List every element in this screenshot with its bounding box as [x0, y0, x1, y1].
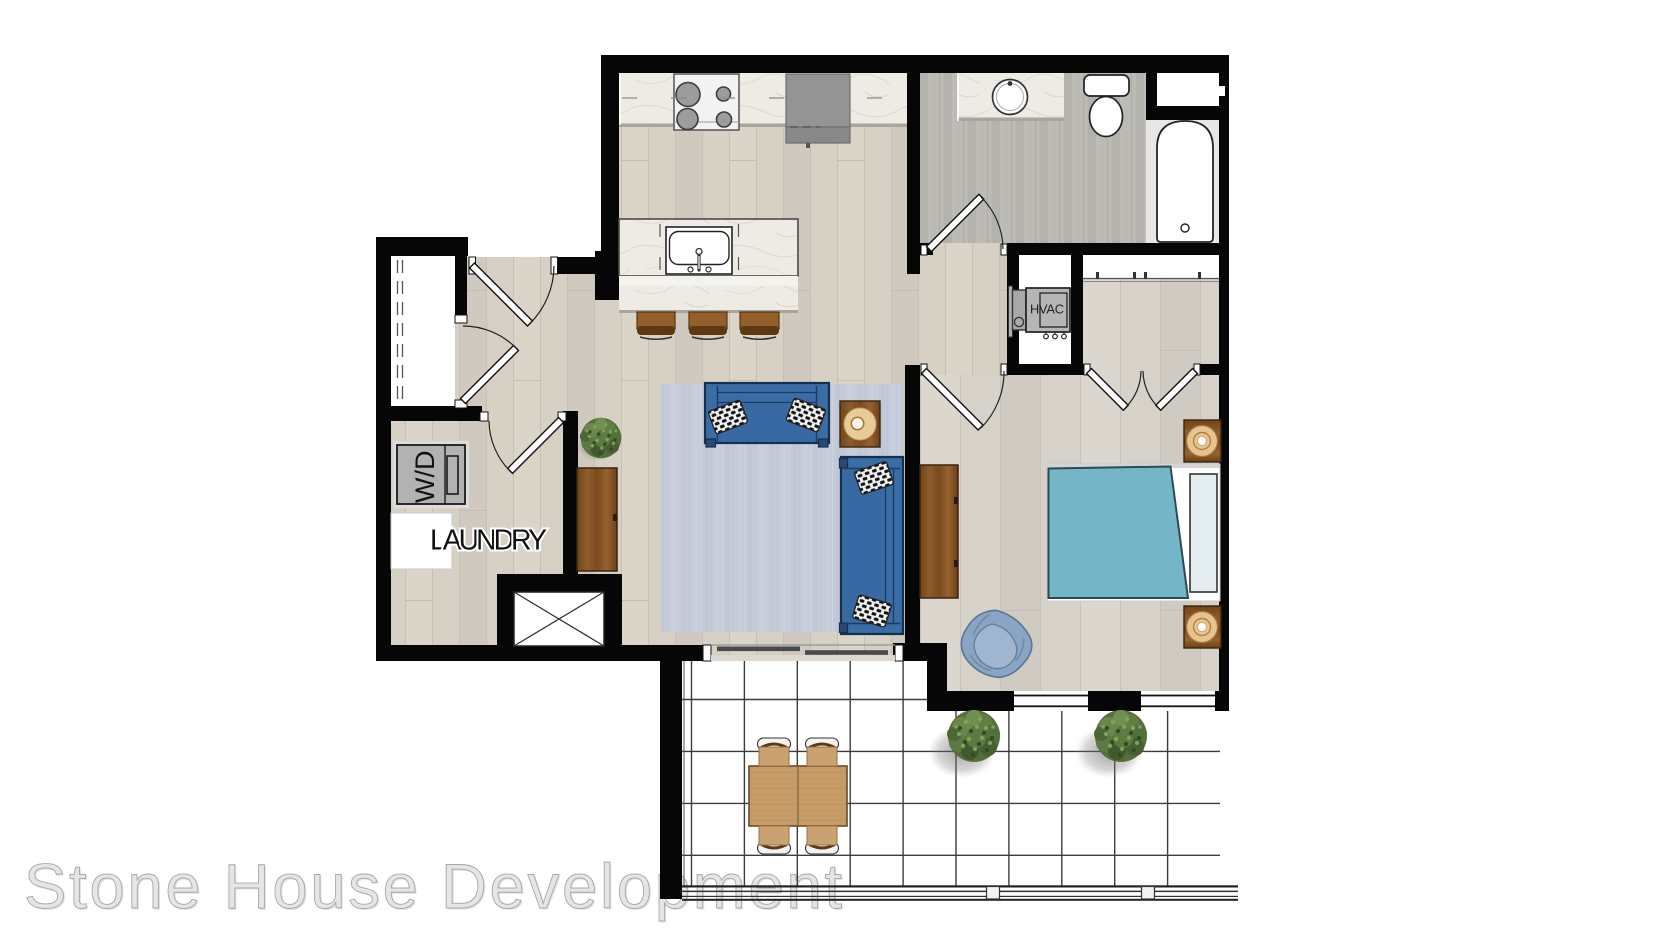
svg-text:HVAC: HVAC	[1030, 302, 1064, 317]
svg-text:W/D: W/D	[410, 451, 440, 503]
svg-text:LAUNDRY: LAUNDRY	[430, 525, 547, 557]
